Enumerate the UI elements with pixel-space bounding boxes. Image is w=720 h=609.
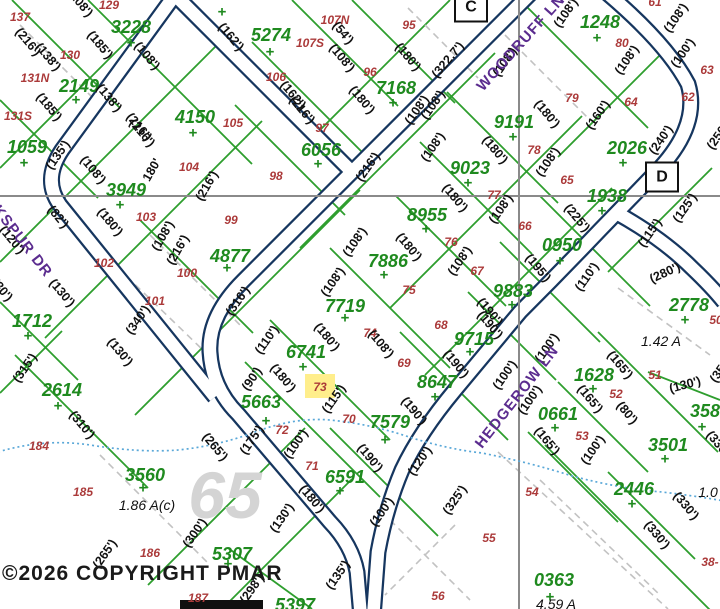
- lot-number: 72: [275, 424, 288, 436]
- parcel-center-cross: +: [509, 130, 518, 145]
- parcel-number: 5663: [241, 393, 281, 411]
- lot-number: 75: [402, 284, 415, 296]
- lot-number: 102: [94, 257, 114, 269]
- parcel-center-cross: +: [698, 420, 707, 435]
- lot-number: 79: [565, 92, 578, 104]
- parcel-center-cross: +: [661, 452, 670, 467]
- parcel-center-cross: +: [593, 31, 602, 46]
- lot-number: 101: [145, 295, 165, 307]
- parcel-number: 0950: [542, 236, 582, 254]
- parcel-center-cross: +: [54, 399, 63, 414]
- lot-number: 131S: [4, 110, 32, 122]
- parcel-center-cross: +: [336, 484, 345, 499]
- parcel-center-cross: +: [619, 156, 628, 171]
- section-watermark: 65: [188, 462, 261, 528]
- lot-number: 69: [397, 357, 410, 369]
- parcel-center-cross: +: [24, 329, 33, 344]
- map-grid-box: D: [645, 162, 679, 193]
- lot-number: 185: [73, 486, 93, 498]
- lot-number: 56: [431, 590, 444, 602]
- lot-number: 50: [709, 314, 720, 326]
- lot-number: 99: [224, 214, 237, 226]
- parcel-center-cross: +: [266, 45, 275, 60]
- lot-number: 67: [470, 265, 483, 277]
- parcel-center-cross: +: [380, 268, 389, 283]
- parcel-center-cross: +: [628, 497, 637, 512]
- lot-number: 71: [305, 460, 318, 472]
- lot-number: 100: [177, 267, 197, 279]
- parcel-number: 2614: [42, 381, 82, 399]
- parcel-number: 0363: [534, 571, 574, 589]
- acreage-label: 1.42 A: [641, 334, 681, 348]
- acreage-label: 1.0: [698, 485, 717, 499]
- acreage-label: 4.59 A: [536, 597, 576, 609]
- lot-number: 186: [140, 547, 160, 559]
- lot-number: 103: [136, 211, 156, 223]
- parcel-number: 7579: [370, 413, 410, 431]
- parcel-center-cross: +: [139, 481, 148, 496]
- parcel-center-cross: +: [551, 421, 560, 436]
- parcel-center-cross: +: [422, 222, 431, 237]
- copyright-text: ©2026 COPYRIGHT PMAR: [2, 562, 283, 586]
- lot-number: 55: [482, 532, 495, 544]
- lot-number: 184: [29, 440, 49, 452]
- parcel-number: 1059: [7, 138, 47, 156]
- parcel-center-cross: +: [556, 254, 565, 269]
- parcel-number: 1248: [580, 13, 620, 31]
- lot-number: 53: [575, 430, 588, 442]
- lot-number: 187: [188, 592, 208, 604]
- parcel-center-cross: +: [464, 176, 473, 191]
- parcel-center-cross: +: [431, 390, 440, 405]
- lot-number: 68: [434, 319, 447, 331]
- lot-number: 98: [269, 170, 282, 182]
- lot-number: 130: [60, 49, 80, 61]
- lot-number: 107S: [296, 37, 324, 49]
- lot-number: 65: [560, 174, 573, 186]
- lot-number: 38-: [701, 556, 718, 568]
- parcel-center-cross: +: [466, 345, 475, 360]
- parcel-center-cross: +: [189, 126, 198, 141]
- plat-map[interactable]: 3228+5274+2149+4150+1059+3949+6056+7168+…: [0, 0, 720, 609]
- parcel-number: 3587: [690, 402, 720, 420]
- parcel-number: 1938: [587, 187, 627, 205]
- lot-number: 66: [518, 220, 531, 232]
- lot-number: 51: [648, 369, 661, 381]
- parcel-center-cross: +: [508, 298, 517, 313]
- lot-number: 73: [313, 381, 326, 393]
- parcel-center-cross: +: [116, 198, 125, 213]
- parcel-number: 5397: [275, 596, 315, 609]
- lot-number: 52: [609, 388, 622, 400]
- lot-number: 95: [402, 19, 415, 31]
- lot-number: 76: [444, 236, 457, 248]
- lot-number: 105: [223, 117, 243, 129]
- parcel-number: 5274: [251, 26, 291, 44]
- lot-number: 137: [10, 11, 30, 23]
- lot-number: 104: [179, 161, 199, 173]
- parcel-center-cross: +: [389, 96, 398, 111]
- parcel-center-cross: +: [314, 157, 323, 172]
- lot-number: 70: [342, 413, 355, 425]
- lot-number: 62: [681, 91, 694, 103]
- lot-number: 54: [525, 486, 538, 498]
- lot-number: 63: [700, 64, 713, 76]
- parcel-center-cross: +: [598, 204, 607, 219]
- lot-number: 129: [99, 0, 119, 11]
- parcel-center-cross: +: [262, 414, 271, 429]
- parcel-number: 4150: [175, 108, 215, 126]
- lot-number: 78: [527, 144, 540, 156]
- parcel-center-cross: +: [223, 261, 232, 276]
- map-grid-box: C: [454, 0, 488, 23]
- parcel-center-cross: +: [681, 313, 690, 328]
- acreage-label: 1.86 A(c): [119, 498, 175, 512]
- parcel-center-cross: +: [341, 311, 350, 326]
- parcel-number: 6591: [325, 468, 365, 486]
- lot-number: 61: [648, 0, 661, 8]
- lot-number: 131N: [21, 72, 50, 84]
- parcel-center-cross: +: [72, 93, 81, 108]
- lot-number: 96: [363, 66, 376, 78]
- parcel-number: 3949: [106, 181, 146, 199]
- parcel-center-cross: +: [20, 156, 29, 171]
- parcel-center-cross: +: [299, 360, 308, 375]
- lot-number: 97: [315, 122, 328, 134]
- lot-number: 64: [624, 96, 637, 108]
- parcel-center-cross: +: [218, 5, 227, 20]
- parcel-number: 3228: [111, 18, 151, 36]
- parcel-center-cross: +: [381, 433, 390, 448]
